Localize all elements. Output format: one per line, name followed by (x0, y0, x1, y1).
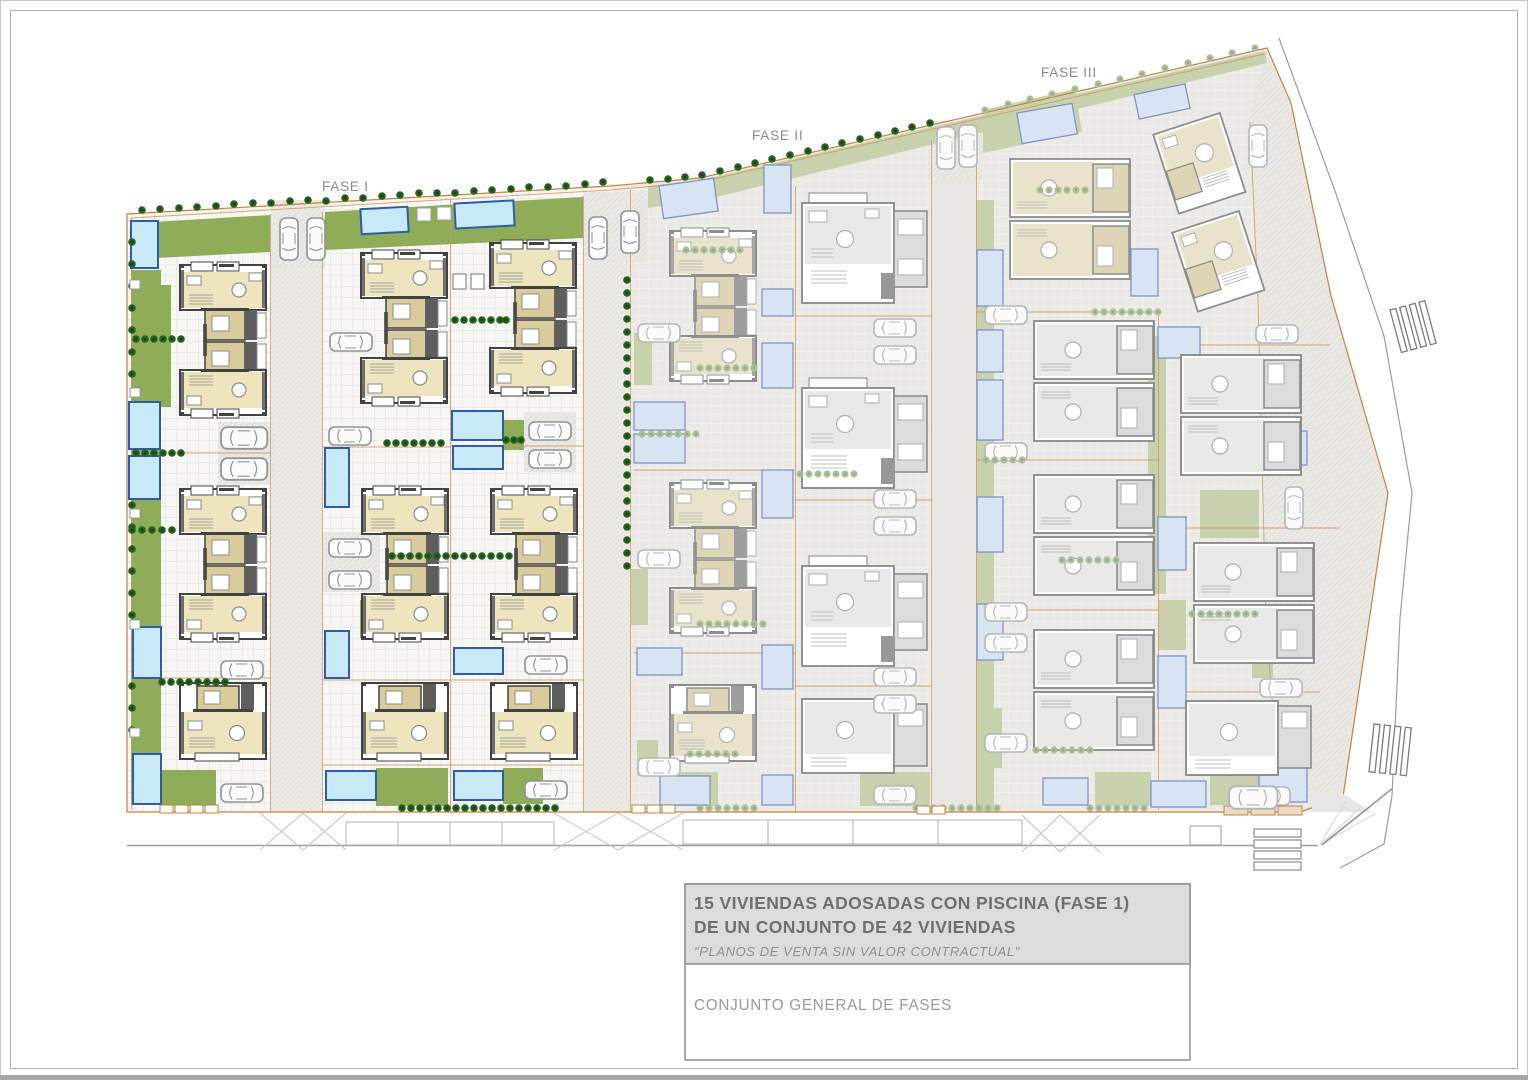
svg-text:FASE I: FASE I (322, 179, 369, 194)
svg-text:DE UN CONJUNTO DE 42 VIVIENDAS: DE UN CONJUNTO DE 42 VIVIENDAS (694, 917, 1016, 937)
svg-text:CONJUNTO GENERAL DE FASES: CONJUNTO GENERAL DE FASES (694, 997, 952, 1014)
svg-text:FASE III: FASE III (1041, 65, 1097, 80)
svg-text:FASE II: FASE II (752, 128, 803, 143)
svg-text:15 VIVIENDAS ADOSADAS CON PISC: 15 VIVIENDAS ADOSADAS CON PISCINA (FASE … (694, 893, 1130, 913)
svg-text:"PLANOS DE VENTA SIN VALOR CON: "PLANOS DE VENTA SIN VALOR CONTRACTUAL" (694, 944, 1021, 959)
